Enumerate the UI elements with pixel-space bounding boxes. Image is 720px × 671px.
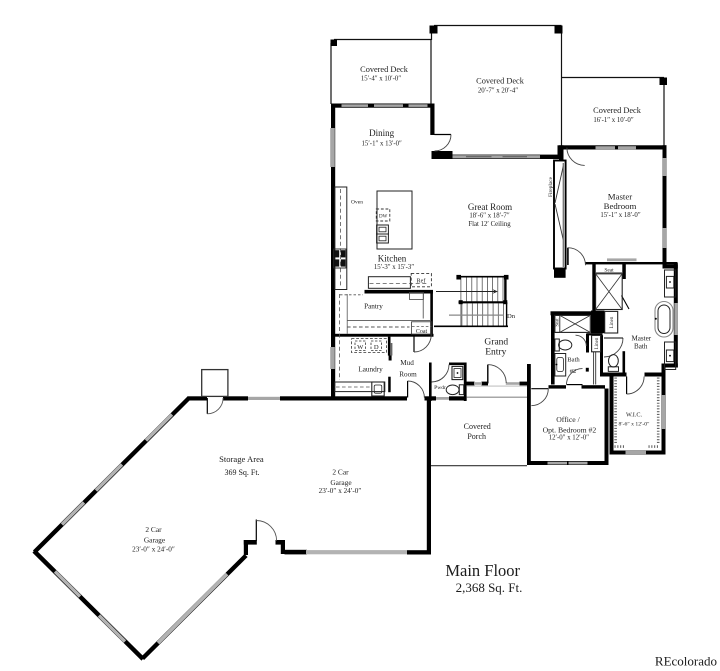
svg-text:Entry: Entry [485, 347, 506, 357]
svg-text:23′-0″ x 24′-0″: 23′-0″ x 24′-0″ [132, 545, 175, 553]
svg-text:Kitchen: Kitchen [378, 253, 407, 263]
svg-text:Mud: Mud [400, 359, 414, 367]
svg-text:REcolorado: REcolorado [655, 653, 717, 668]
svg-text:15′-1″ x 13′-0″: 15′-1″ x 13′-0″ [362, 141, 403, 148]
svg-text:Covered: Covered [464, 422, 491, 431]
svg-text:Fireplace: Fireplace [548, 176, 554, 197]
svg-text:Ref: Ref [417, 277, 426, 284]
svg-text:Opt. Bedroom #2: Opt. Bedroom #2 [543, 426, 597, 435]
svg-text:15′-3″ x 15′-3″: 15′-3″ x 15′-3″ [374, 264, 415, 271]
svg-text:15′-1″ x 18′-0″: 15′-1″ x 18′-0″ [600, 212, 641, 219]
svg-text:Bedroom: Bedroom [604, 201, 637, 211]
svg-text:8′-6″ x 12′-0″: 8′-6″ x 12′-0″ [619, 422, 651, 428]
svg-text:Covered Deck: Covered Deck [360, 65, 409, 74]
svg-text:W: W [357, 344, 364, 351]
svg-text:369 Sq. Ft.: 369 Sq. Ft. [224, 468, 259, 477]
svg-text:Pwdr: Pwdr [434, 385, 446, 391]
svg-text:Garage: Garage [144, 535, 166, 544]
svg-text:2,368 Sq. Ft.: 2,368 Sq. Ft. [456, 580, 523, 595]
svg-text:Bath: Bath [634, 342, 648, 350]
svg-text:2 Car: 2 Car [332, 467, 349, 476]
svg-text:Dining: Dining [369, 128, 395, 138]
svg-text:Linen: Linen [595, 337, 600, 349]
svg-text:15′-4″ x 10′-0″: 15′-4″ x 10′-0″ [361, 75, 402, 82]
svg-text:Dn: Dn [507, 313, 516, 320]
svg-text:12′-0″ x 12′-0″: 12′-0″ x 12′-0″ [549, 435, 590, 442]
svg-text:Seat: Seat [604, 267, 614, 273]
svg-text:Great Room: Great Room [468, 202, 512, 212]
svg-text:Porch: Porch [467, 432, 486, 441]
svg-text:16′-1″ x 10′-0″: 16′-1″ x 10′-0″ [593, 117, 634, 124]
svg-text:Covered Deck: Covered Deck [593, 106, 642, 115]
svg-text:DW: DW [379, 215, 388, 220]
svg-text:Room: Room [399, 370, 417, 378]
svg-text:Main Floor: Main Floor [445, 561, 520, 580]
svg-text:Office /: Office / [556, 415, 580, 424]
svg-text:Oven: Oven [351, 200, 363, 206]
svg-text:Garage: Garage [330, 478, 352, 487]
svg-text:#2: #2 [570, 368, 577, 375]
svg-text:23′-0″ x 24′-0″: 23′-0″ x 24′-0″ [319, 487, 362, 495]
svg-text:W.I.C.: W.I.C. [626, 411, 643, 418]
svg-text:Linen: Linen [610, 316, 615, 328]
svg-text:Seat: Seat [556, 318, 561, 327]
svg-text:18′-6″ x 18′-7″: 18′-6″ x 18′-7″ [469, 213, 510, 220]
svg-text:Covered Deck: Covered Deck [476, 77, 525, 86]
svg-text:2 Car: 2 Car [145, 525, 162, 534]
svg-text:Storage Area: Storage Area [219, 454, 264, 464]
svg-text:Bath: Bath [567, 357, 580, 364]
svg-text:20′-7″ x 20′-4″: 20′-7″ x 20′-4″ [478, 88, 519, 95]
svg-text:Grand: Grand [484, 337, 508, 347]
svg-text:Pantry: Pantry [364, 302, 383, 310]
svg-text:Coat: Coat [416, 329, 428, 335]
svg-text:D: D [374, 344, 379, 351]
svg-text:Master: Master [608, 192, 632, 202]
svg-text:Laundry: Laundry [358, 365, 383, 373]
svg-text:Flat 12′ Ceiling: Flat 12′ Ceiling [468, 221, 511, 228]
